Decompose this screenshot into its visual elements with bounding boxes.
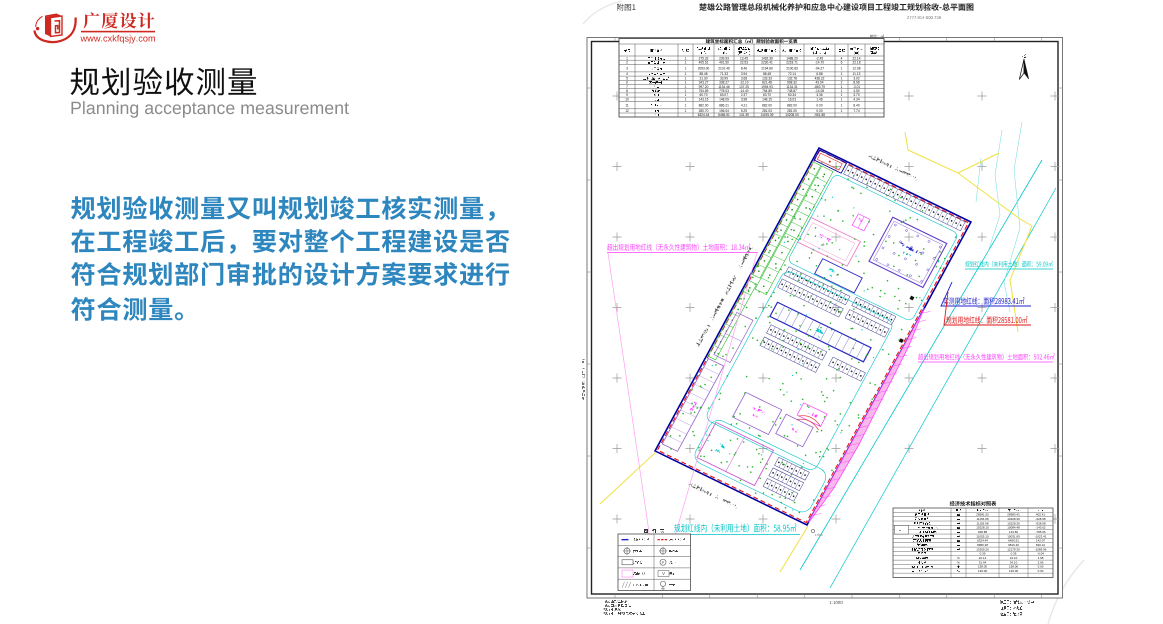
svg-text:2: 2 [626,61,628,65]
svg-text:1: 1 [685,103,687,107]
svg-text:1: 1 [841,109,843,113]
svg-text:1: 1 [841,66,843,70]
svg-text:405.51: 405.51 [699,61,709,65]
svg-text:4.21: 4.21 [741,103,747,107]
svg-text:V: V [662,571,665,576]
svg-text:2230.41: 2230.41 [761,61,773,65]
svg-text:120.00: 120.00 [1009,569,1019,573]
svg-text:141.39: 141.39 [739,113,749,117]
svg-text:2218.71: 2218.71 [786,61,798,65]
svg-text:1: 1 [685,97,687,101]
svg-text:148.15: 148.15 [762,97,772,101]
svg-text:10: 10 [625,97,629,101]
svg-text:8.46: 8.46 [741,66,747,70]
svg-text:1: 1 [841,103,843,107]
svg-text:2194.80: 2194.80 [761,66,773,70]
svg-text:3.98: 3.98 [741,97,747,101]
svg-text:16.03: 16.03 [788,97,796,101]
svg-text:120.00: 120.00 [978,569,988,573]
svg-text:1: 1 [841,97,843,101]
svg-text:1.46: 1.46 [816,97,822,101]
svg-text:12: 12 [625,109,629,113]
svg-text:0.00: 0.00 [816,103,822,107]
svg-text:11195.39: 11195.39 [761,113,774,117]
svg-text:10208.00: 10208.00 [785,113,799,117]
svg-text:886.21: 886.21 [719,103,729,107]
svg-text:1: 1 [685,109,687,113]
svg-text:7.74: 7.74 [853,109,859,113]
svg-text:%: % [957,560,960,564]
svg-text:882.00: 882.00 [762,103,772,107]
svg-text:4.34: 4.34 [853,97,859,101]
svg-text:2101.46: 2101.46 [718,66,730,70]
svg-text:1: 1 [685,66,687,70]
svg-text:143.15: 143.15 [699,97,709,101]
svg-text:2100.83: 2100.83 [786,66,798,70]
svg-text:6466.51: 6466.51 [718,113,730,117]
svg-text:11: 11 [625,103,629,107]
svg-text:6324.44: 6324.44 [698,113,710,117]
svg-text:P: P [662,560,665,565]
svg-text:2093.00: 2093.00 [698,66,710,70]
svg-text:-94.27: -94.27 [815,66,824,70]
svg-text:882.00: 882.00 [699,103,709,107]
svg-text:-961.58: -961.58 [814,113,825,117]
svg-text:-14.70: -14.70 [815,61,824,65]
svg-text:401.50: 401.50 [719,61,729,65]
svg-text:22.18: 22.18 [853,61,861,65]
svg-text:6: 6 [841,61,843,65]
svg-text:3: 3 [626,66,628,70]
svg-text:1: 1 [685,61,687,65]
svg-text:12.08: 12.08 [853,66,861,70]
svg-text:8.40: 8.40 [853,103,859,107]
svg-text:22.53: 22.53 [740,61,748,65]
svg-text:0.00: 0.00 [1038,569,1044,573]
svg-text:148.09: 148.09 [719,97,729,101]
svg-text:882.00: 882.00 [787,103,797,107]
